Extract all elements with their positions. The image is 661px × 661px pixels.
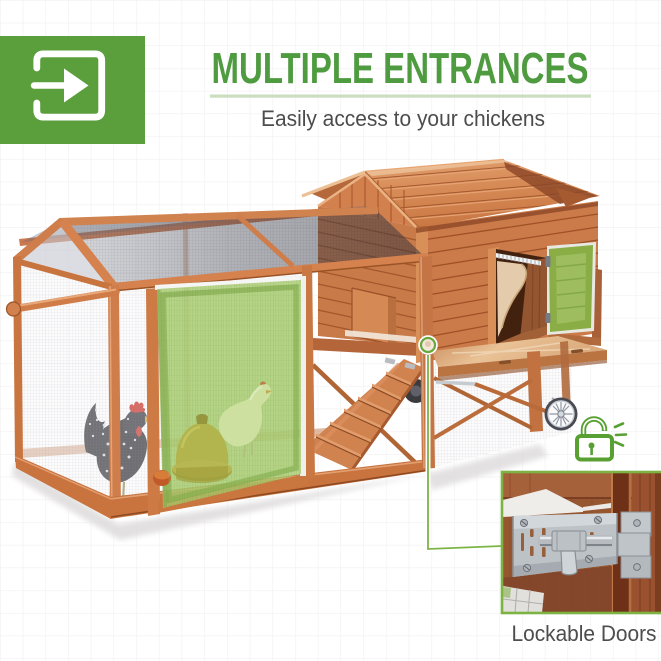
svg-text:Easily access to your chickens: Easily access to your chickens	[261, 106, 545, 131]
svg-text:MULTIPLE ENTRANCES: MULTIPLE ENTRANCES	[212, 44, 589, 93]
svg-text:Lockable Doors: Lockable Doors	[512, 621, 657, 646]
